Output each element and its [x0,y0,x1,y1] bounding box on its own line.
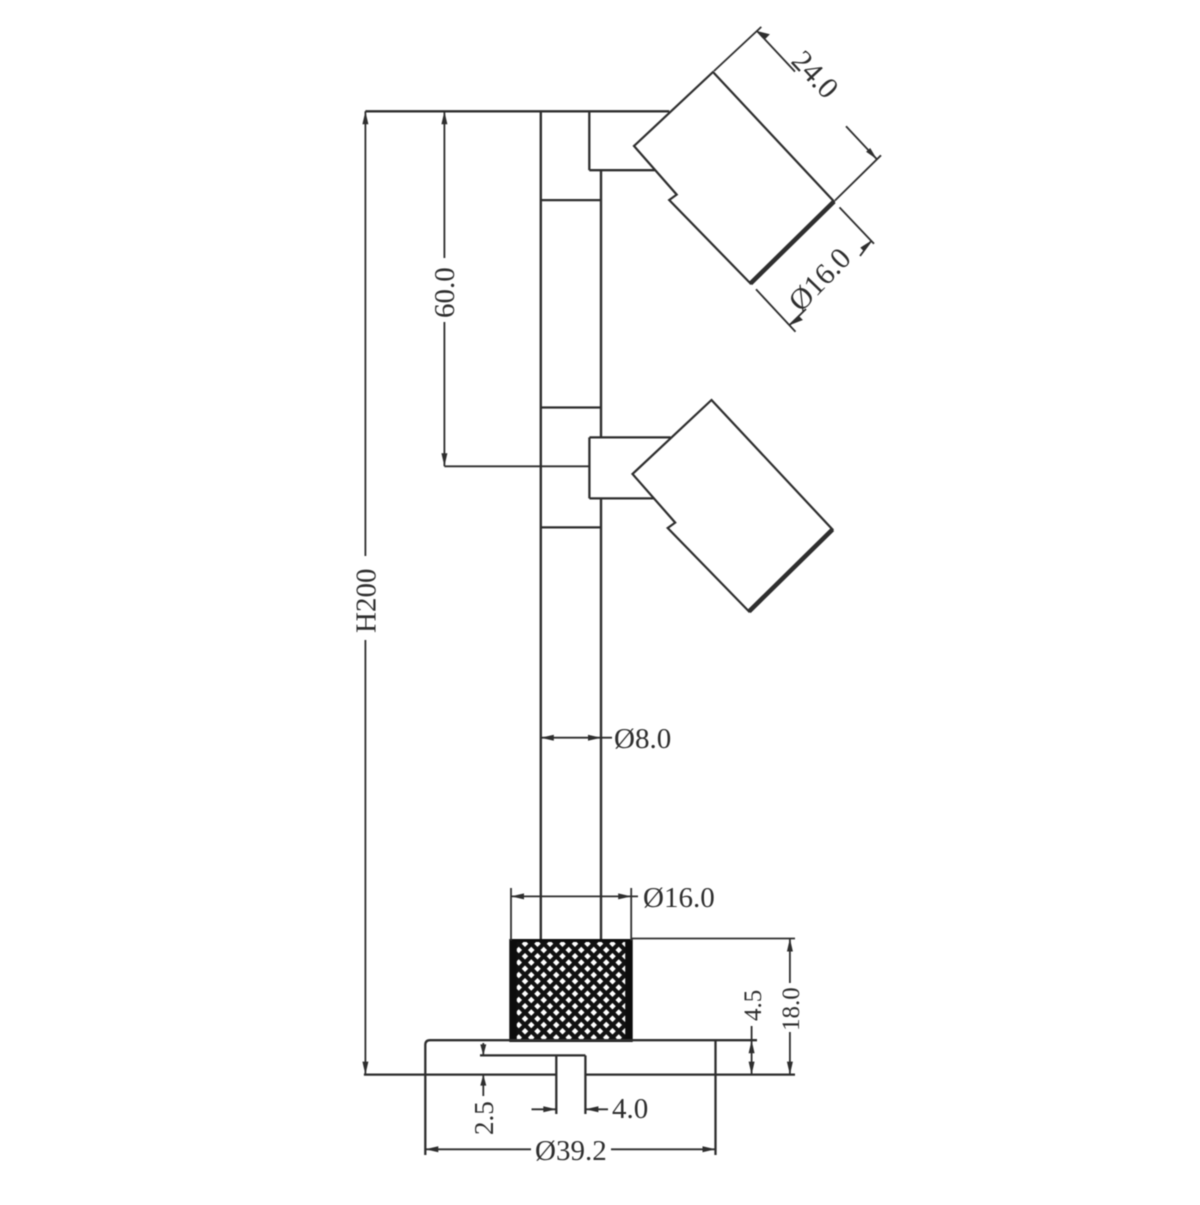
svg-text:Ø16.0: Ø16.0 [643,882,715,914]
svg-text:18.0: 18.0 [778,987,805,1031]
svg-text:H200: H200 [351,569,383,633]
svg-text:2.5: 2.5 [469,1101,499,1135]
svg-text:4.0: 4.0 [612,1093,648,1125]
svg-text:Ø8.0: Ø8.0 [614,723,671,755]
svg-text:Ø39.2: Ø39.2 [535,1135,607,1167]
svg-text:60.0: 60.0 [429,267,461,318]
svg-text:4.5: 4.5 [740,990,767,1021]
